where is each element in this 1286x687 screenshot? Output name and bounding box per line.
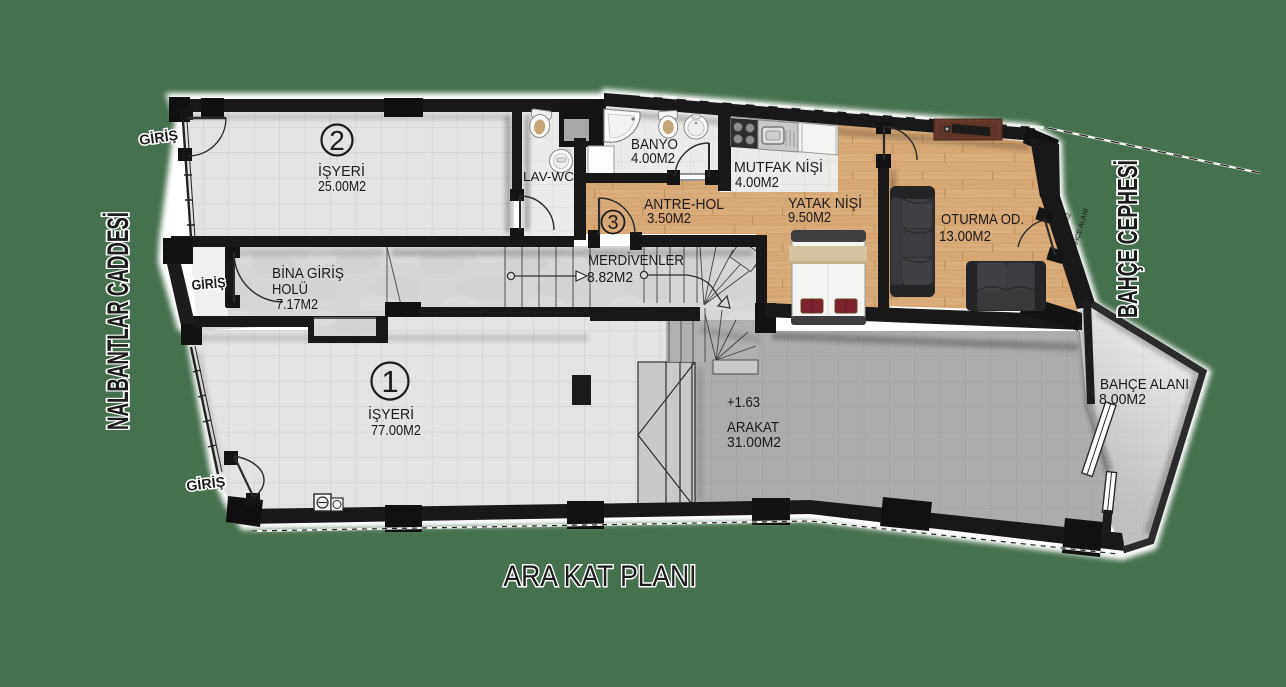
svg-text:2: 2	[329, 125, 345, 156]
svg-text:4.00M2: 4.00M2	[631, 150, 675, 167]
svg-text:MERDİVENLER: MERDİVENLER	[588, 251, 684, 269]
svg-text:9.50M2: 9.50M2	[788, 209, 831, 226]
svg-text:8.00M2: 8.00M2	[1099, 391, 1146, 408]
svg-text:3: 3	[607, 212, 618, 234]
svg-text:GİRİŞ: GİRİŞ	[191, 274, 226, 293]
svg-text:OTURMA OD.: OTURMA OD.	[941, 211, 1024, 228]
svg-text:BİNA GİRİŞ: BİNA GİRİŞ	[272, 264, 344, 282]
svg-text:LAV-WC: LAV-WC	[523, 169, 574, 184]
svg-text:8.82M2: 8.82M2	[587, 269, 633, 286]
svg-text:13.00M2: 13.00M2	[939, 228, 991, 245]
svg-text:31.00M2: 31.00M2	[727, 434, 781, 451]
svg-text:25.00M2: 25.00M2	[318, 178, 366, 195]
svg-text:NALBANTLAR CADDESİ: NALBANTLAR CADDESİ	[102, 212, 135, 430]
svg-text:7.17M2: 7.17M2	[276, 296, 318, 313]
svg-text:1: 1	[381, 364, 398, 399]
svg-text:3.50M2: 3.50M2	[647, 210, 691, 227]
svg-text:ARA KAT PLANI: ARA KAT PLANI	[504, 560, 697, 593]
svg-text:4.00M2: 4.00M2	[735, 174, 779, 191]
svg-text:İŞYERİ: İŞYERİ	[368, 405, 414, 423]
svg-text:+1.63: +1.63	[727, 394, 760, 411]
svg-text:77.00M2: 77.00M2	[371, 422, 421, 439]
svg-text:BAHÇE CEPHESİ: BAHÇE CEPHESİ	[1112, 160, 1143, 318]
